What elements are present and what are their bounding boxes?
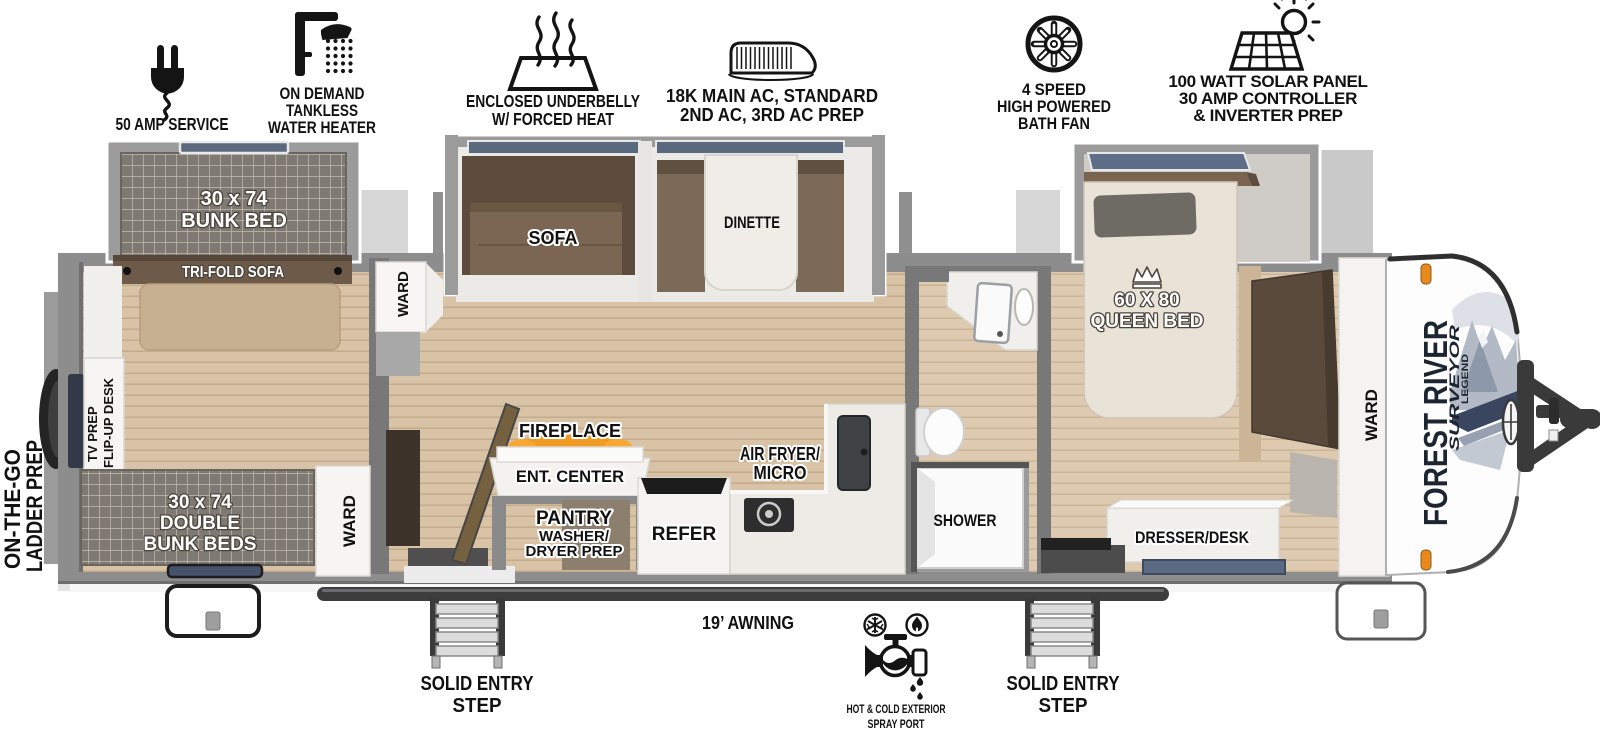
svg-text:BATH FAN: BATH FAN bbox=[1018, 115, 1090, 133]
svg-text:30 x 74: 30 x 74 bbox=[201, 188, 269, 210]
svg-text:SHOWER: SHOWER bbox=[934, 511, 997, 530]
svg-text:DOUBLE: DOUBLE bbox=[160, 513, 240, 534]
svg-text:MICRO: MICRO bbox=[754, 463, 807, 483]
svg-text:TRI-FOLD SOFA: TRI-FOLD SOFA bbox=[182, 264, 284, 281]
svg-text:60 X 80: 60 X 80 bbox=[1114, 290, 1180, 311]
svg-text:WARD: WARD bbox=[395, 271, 412, 317]
svg-text:BUNK BED: BUNK BED bbox=[181, 210, 287, 232]
svg-text:AIR FRYER/: AIR FRYER/ bbox=[740, 444, 820, 464]
svg-text:2ND AC, 3RD AC PREP: 2ND AC, 3RD AC PREP bbox=[680, 104, 864, 125]
svg-text:SOFA: SOFA bbox=[528, 228, 577, 248]
svg-text:WATER HEATER: WATER HEATER bbox=[268, 119, 376, 137]
svg-text:DINETTE: DINETTE bbox=[724, 213, 780, 232]
svg-text:TANKLESS: TANKLESS bbox=[286, 102, 358, 120]
svg-text:WARD: WARD bbox=[340, 495, 359, 547]
svg-text:LEGEND: LEGEND bbox=[1460, 354, 1471, 404]
svg-text:LADDER PREP: LADDER PREP bbox=[22, 440, 47, 572]
svg-text:WARD: WARD bbox=[1362, 389, 1381, 441]
svg-text:PANTRY: PANTRY bbox=[536, 508, 612, 529]
svg-text:50 AMP SERVICE: 50 AMP SERVICE bbox=[116, 114, 229, 134]
svg-text:ON DEMAND: ON DEMAND bbox=[280, 85, 365, 103]
svg-text:18K MAIN AC, STANDARD: 18K MAIN AC, STANDARD bbox=[666, 85, 878, 106]
svg-text:FLIP-UP DESK: FLIP-UP DESK bbox=[101, 377, 116, 468]
svg-text:4 SPEED: 4 SPEED bbox=[1022, 81, 1086, 99]
svg-text:SPRAY PORT: SPRAY PORT bbox=[868, 719, 925, 731]
svg-text:ENCLOSED UNDERBELLY: ENCLOSED UNDERBELLY bbox=[466, 91, 640, 111]
svg-text:ENT. CENTER: ENT. CENTER bbox=[516, 468, 624, 486]
svg-text:30 x 74: 30 x 74 bbox=[168, 492, 232, 513]
svg-text:SOLID ENTRY: SOLID ENTRY bbox=[1007, 673, 1121, 695]
svg-text:BUNK BEDS: BUNK BEDS bbox=[144, 534, 257, 555]
svg-text:19’ AWNING: 19’ AWNING bbox=[702, 613, 794, 633]
svg-text:QUEEN BED: QUEEN BED bbox=[1091, 311, 1204, 332]
svg-text:DRESSER/DESK: DRESSER/DESK bbox=[1135, 528, 1250, 547]
svg-text:DRYER PREP: DRYER PREP bbox=[526, 543, 623, 560]
svg-text:W/ FORCED HEAT: W/ FORCED HEAT bbox=[492, 109, 614, 129]
svg-text:TV PREP: TV PREP bbox=[85, 406, 100, 462]
svg-text:HOT & COLD EXTERIOR: HOT & COLD EXTERIOR bbox=[847, 704, 947, 716]
svg-text:STEP: STEP bbox=[453, 695, 502, 717]
svg-text:REFER: REFER bbox=[652, 524, 717, 545]
svg-text:SOLID ENTRY: SOLID ENTRY bbox=[421, 673, 535, 695]
svg-text:& INVERTER PREP: & INVERTER PREP bbox=[1193, 106, 1342, 125]
svg-text:FIREPLACE: FIREPLACE bbox=[519, 421, 621, 441]
svg-text:HIGH POWERED: HIGH POWERED bbox=[997, 98, 1111, 116]
svg-text:STEP: STEP bbox=[1039, 695, 1088, 717]
